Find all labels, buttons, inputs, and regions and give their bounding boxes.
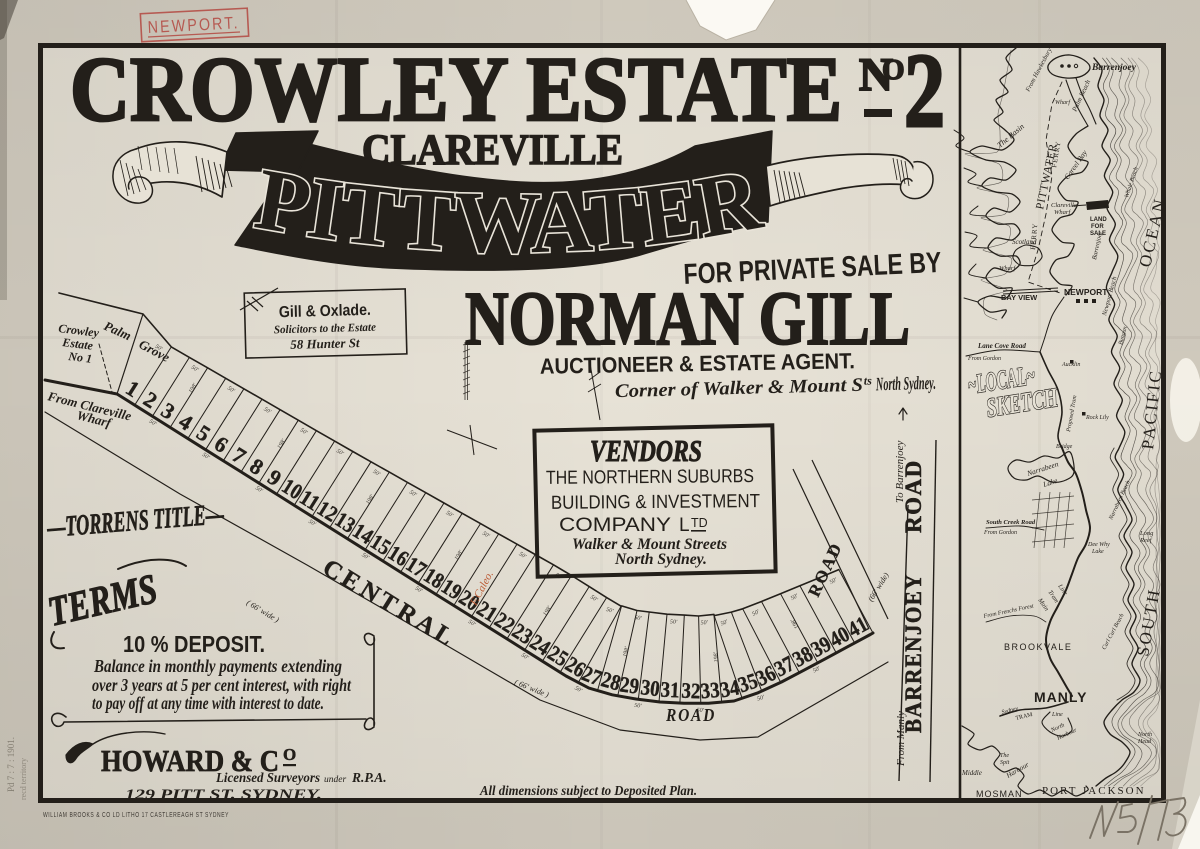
svg-text:No 1: No 1 (67, 349, 93, 366)
svg-text:L: L (679, 515, 690, 536)
svg-text:All dimensions subject to: All dimensions subject to Deposited Plan… (479, 784, 697, 799)
svg-text:50': 50' (670, 619, 678, 625)
svg-text:MANLY: MANLY (1034, 689, 1088, 705)
svg-text:LAND: LAND (1090, 217, 1107, 223)
svg-text:FOR: FOR (1091, 224, 1104, 230)
svg-text:TD: TD (691, 516, 708, 530)
svg-text:Line: Line (1051, 712, 1063, 718)
svg-text:BROOKVALE: BROOKVALE (1004, 642, 1072, 652)
svg-text:THE NORTHERN SUBURBS: THE NORTHERN SUBURBS (546, 466, 754, 489)
svg-text:29: 29 (619, 671, 641, 698)
svg-text:North Sydney.: North Sydney. (614, 551, 707, 568)
svg-text:10 % DEPOSIT.: 10 % DEPOSIT. (123, 631, 265, 657)
svg-text:2: 2 (904, 32, 945, 149)
svg-text:Long: Long (1139, 530, 1154, 537)
svg-text:ts: ts (864, 373, 873, 387)
svg-text:Head: Head (1137, 739, 1152, 745)
svg-text:Reef: Reef (1139, 537, 1153, 544)
svg-text:R.P.A.: R.P.A. (351, 770, 387, 785)
svg-text:30: 30 (639, 674, 661, 701)
svg-text:Balance in monthly payments ex: Balance in monthly payments extending (93, 656, 342, 676)
svg-text:recd territory: recd territory (19, 758, 28, 800)
svg-text:CROWLEY ESTATE: CROWLEY ESTATE (70, 38, 842, 140)
svg-text:58 Hunter St: 58 Hunter St (290, 335, 360, 352)
svg-text:BAY VIEW: BAY VIEW (1001, 293, 1038, 302)
svg-text:South Creek Road: South Creek Road (986, 519, 1036, 526)
svg-text:32: 32 (681, 678, 701, 704)
svg-text:Gill & Oxlade.: Gill & Oxlade. (279, 302, 371, 321)
svg-text:BUILDING & INVESTMENT: BUILDING & INVESTMENT (551, 491, 761, 514)
svg-text:129 PITT ST. SYDNEY.: 129 PITT ST. SYDNEY. (125, 787, 322, 803)
svg-text:To Barrenjoey: To Barrenjoey (894, 440, 906, 503)
svg-text:Dee Why: Dee Why (1087, 542, 1110, 548)
svg-text:BARRENJOEY: BARRENJOEY (901, 573, 926, 733)
svg-text:From Gordon: From Gordon (967, 356, 1001, 362)
svg-text:Licensed Surveyors: Licensed Surveyors (215, 770, 320, 785)
svg-text:VENDORS: VENDORS (590, 433, 702, 468)
svg-text:From Gordon: From Gordon (983, 530, 1017, 536)
svg-text:Lane Cove Road: Lane Cove Road (977, 342, 1026, 350)
svg-text:Spit: Spit (1000, 760, 1010, 766)
svg-text:Pd 7 : 7 : 1901.: Pd 7 : 7 : 1901. (6, 737, 16, 792)
svg-text:Wharf: Wharf (1055, 99, 1071, 106)
svg-text:198': 198' (713, 651, 720, 662)
svg-text:COMPANY: COMPANY (559, 515, 671, 536)
svg-text:over 3 years at 5 per cent int: over 3 years at 5 per cent interest, wit… (92, 675, 352, 695)
svg-text:ROAD: ROAD (665, 705, 716, 725)
svg-text:From Manly: From Manly (895, 711, 907, 767)
svg-text:Wharf: Wharf (1054, 209, 1071, 216)
svg-text:Bridge: Bridge (1056, 444, 1073, 450)
svg-text:O: O (283, 745, 296, 764)
svg-text:North Sydney.: North Sydney. (875, 373, 936, 396)
svg-text:The: The (1000, 753, 1009, 759)
svg-text:Wharf: Wharf (999, 265, 1016, 272)
svg-text:PORT JACKSON: PORT JACKSON (1042, 785, 1146, 797)
svg-text:50': 50' (700, 620, 708, 627)
svg-text:Middle: Middle (961, 769, 982, 777)
svg-text:Lake: Lake (1091, 549, 1104, 555)
svg-text:North: North (1137, 732, 1152, 738)
svg-text:Rock Lily: Rock Lily (1085, 415, 1109, 421)
svg-text:to pay off at any time with in: to pay off at any time with interest to … (92, 693, 324, 713)
svg-text:WILLIAM BROOKS & CO LD LITHO 1: WILLIAM BROOKS & CO LD LITHO 17 CASTLERE… (43, 812, 229, 819)
svg-text:NEWPORT: NEWPORT (1064, 287, 1108, 297)
svg-text:33: 33 (700, 677, 721, 704)
svg-text:under: under (324, 775, 346, 785)
svg-text:MOSMAN: MOSMAN (976, 789, 1023, 799)
svg-text:O: O (882, 54, 905, 86)
svg-text:31: 31 (660, 677, 680, 703)
